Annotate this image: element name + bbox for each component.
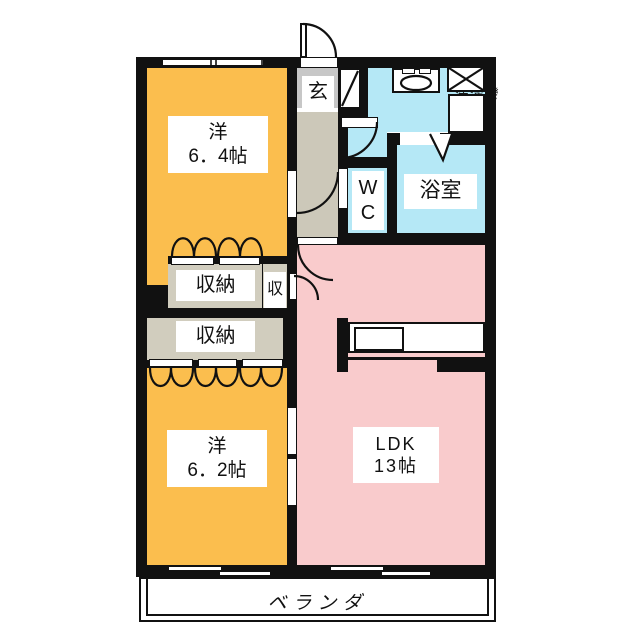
room-western-a-name: 洋 — [208, 121, 227, 145]
closet-lower-name: 収納 — [196, 324, 236, 349]
closet-small-name: 収 — [267, 280, 283, 300]
closet-lower-track — [242, 359, 283, 367]
entrance-step-line — [297, 108, 338, 112]
closet-upper-label: 収納 — [176, 270, 255, 301]
shoe-cabinet-icon — [339, 68, 361, 109]
entry-door-opening — [300, 57, 338, 68]
floor-plan: 洗濯機 ベランダ 洋 — [0, 0, 640, 640]
room-western-b-label: 洋 6．2帖 — [167, 430, 267, 487]
wc-door-leaf — [338, 168, 348, 209]
wc-line2: C — [361, 201, 375, 226]
sink-icon — [392, 68, 440, 93]
closet-upper-name: 収納 — [196, 273, 236, 298]
closet-small-label: 収 — [264, 272, 286, 308]
wall-patch — [147, 285, 168, 318]
sink-faucet — [402, 68, 415, 74]
bathroom-label: 浴室 — [404, 174, 477, 209]
window-bottom-left-pane — [219, 571, 271, 576]
wall-kitchen-stub — [337, 318, 348, 372]
window-bottom-right-pane — [381, 571, 431, 576]
room-a-door-leaf — [287, 170, 297, 218]
room-western-a-label: 洋 6．4帖 — [168, 116, 268, 173]
wall-wc-bath — [387, 145, 397, 233]
sliding-door-pane — [287, 458, 297, 506]
closet-lower-label: 収納 — [176, 321, 255, 352]
wall-left — [136, 57, 147, 577]
bathroom-name: 浴室 — [420, 178, 462, 204]
closet-lower-track — [149, 359, 193, 367]
closet-small-door-leaf — [289, 273, 297, 300]
ldk-label: LDK 13帖 — [353, 427, 439, 483]
washroom-door-leaf — [341, 117, 378, 128]
room-western-b-name: 洋 — [207, 435, 226, 459]
entry-door-leaf — [300, 23, 307, 58]
sliding-door-pane — [287, 407, 297, 455]
washing-machine-icon — [447, 66, 485, 92]
entry-door-swing-arc — [303, 24, 336, 57]
room-western-b-size: 6．2帖 — [187, 459, 246, 483]
entrance-name: 玄 — [308, 80, 328, 105]
wall-bath-bottom — [338, 233, 496, 245]
entrance-label: 玄 — [302, 76, 334, 108]
closet-upper-track — [219, 257, 260, 265]
kitchen-counter-edge — [348, 357, 485, 360]
wc-label: W C — [352, 171, 384, 230]
hallway-floor — [297, 112, 338, 237]
ldk-name: LDK — [375, 433, 416, 456]
window-bottom-right-pane — [330, 566, 384, 571]
veranda-label: ベランダ — [139, 588, 496, 615]
washroom-floor-pocket — [348, 127, 387, 157]
wall-kitchen-stub-right — [437, 360, 485, 372]
room-western-a-floor — [147, 68, 287, 285]
ldk-floor — [297, 245, 485, 565]
ldk-size: 13帖 — [374, 455, 418, 478]
ldk-doorway — [297, 237, 338, 245]
washer-pan-icon — [448, 94, 485, 133]
closet-upper-track — [171, 257, 214, 265]
window-top — [163, 58, 263, 67]
room-western-a-size: 6．4帖 — [188, 145, 247, 169]
closet-lower-track — [198, 359, 237, 367]
sink-faucet — [419, 68, 431, 74]
wc-line1: W — [359, 176, 378, 201]
bath-door-opening — [400, 133, 440, 145]
kitchen-sink-icon — [354, 327, 404, 351]
window-bottom-left-pane — [168, 566, 222, 571]
